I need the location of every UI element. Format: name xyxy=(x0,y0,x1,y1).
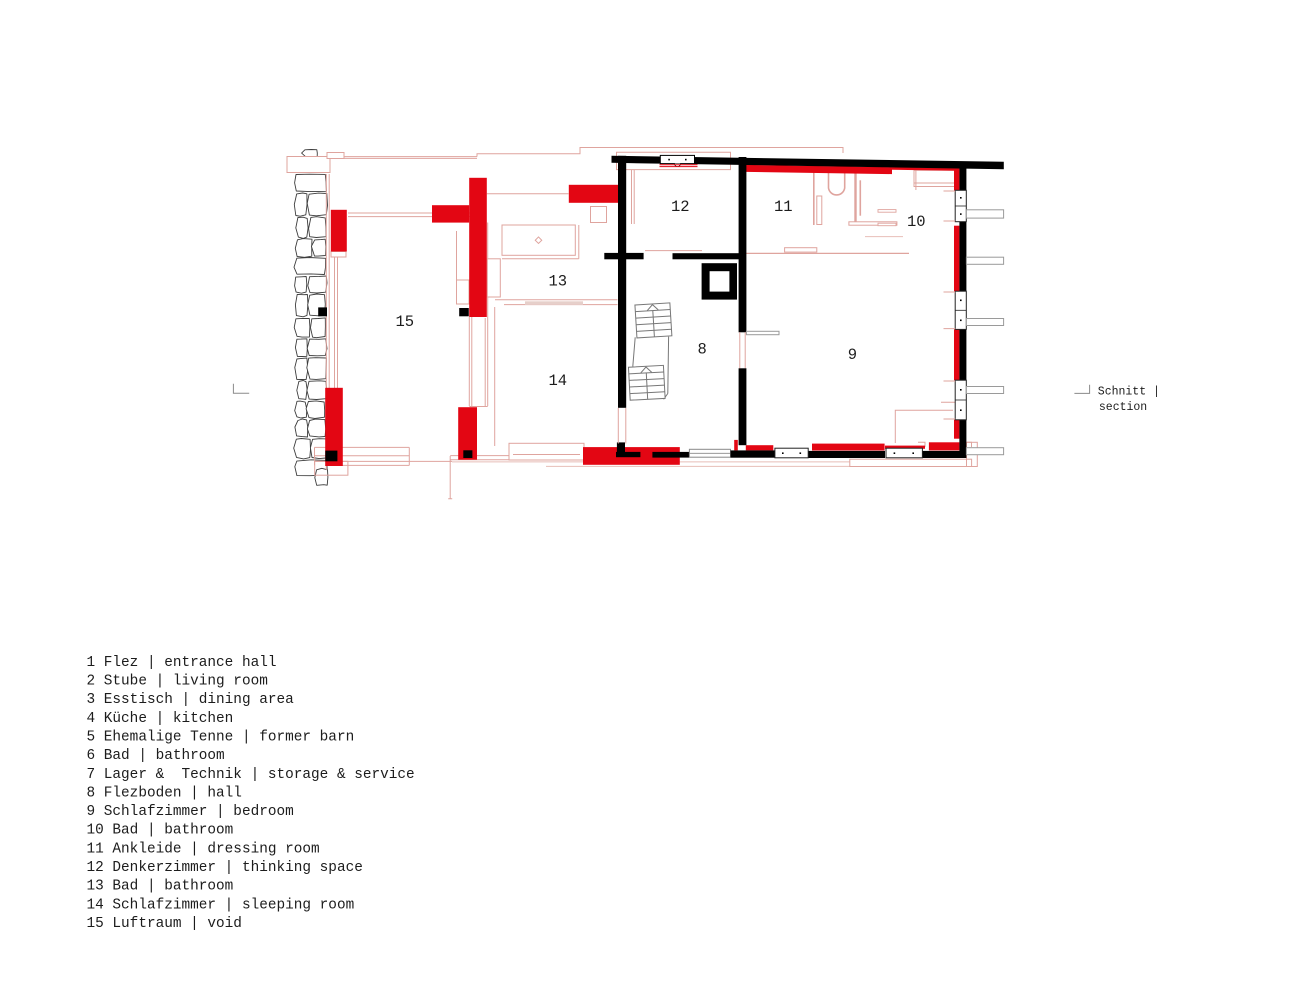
svg-text:4 Küche | kitchen: 4 Küche | kitchen xyxy=(87,711,234,727)
svg-text:Schnitt |: Schnitt | xyxy=(1098,386,1160,399)
svg-text:2 Stube | living room: 2 Stube | living room xyxy=(87,674,268,690)
svg-text:5 Ehemalige Tenne | former bar: 5 Ehemalige Tenne | former barn xyxy=(87,729,355,745)
svg-text:11 Ankleide | dressing room: 11 Ankleide | dressing room xyxy=(87,841,320,857)
svg-text:15: 15 xyxy=(396,313,415,331)
svg-text:6 Bad | bathroom: 6 Bad | bathroom xyxy=(87,748,225,764)
svg-text:12: 12 xyxy=(671,198,690,216)
svg-text:13 Bad | bathroom: 13 Bad | bathroom xyxy=(87,879,234,895)
svg-text:14 Schlafzimmer | sleeping roo: 14 Schlafzimmer | sleeping room xyxy=(87,897,355,913)
svg-text:7 Lager & Technik | storage &: 7 Lager & Technik | storage & service xyxy=(87,767,415,783)
svg-text:9 Schlafzimmer | bedroom: 9 Schlafzimmer | bedroom xyxy=(87,804,294,820)
svg-text:section: section xyxy=(1099,401,1147,414)
svg-text:10 Bad | bathroom: 10 Bad | bathroom xyxy=(87,823,234,839)
svg-text:10: 10 xyxy=(907,213,926,231)
svg-text:14: 14 xyxy=(549,372,568,390)
svg-text:8 Flezboden | hall: 8 Flezboden | hall xyxy=(87,785,242,801)
svg-text:11: 11 xyxy=(774,198,793,216)
svg-text:15 Luftraum | void: 15 Luftraum | void xyxy=(87,916,242,932)
svg-text:13: 13 xyxy=(549,273,568,291)
svg-text:3 Esstisch | dining area: 3 Esstisch | dining area xyxy=(87,692,295,708)
svg-text:9: 9 xyxy=(848,346,857,364)
svg-text:12 Denkerzimmer | thinking spa: 12 Denkerzimmer | thinking space xyxy=(87,860,363,876)
svg-text:8: 8 xyxy=(698,341,707,359)
svg-text:1 Flez | entrance hall: 1 Flez | entrance hall xyxy=(87,655,277,671)
